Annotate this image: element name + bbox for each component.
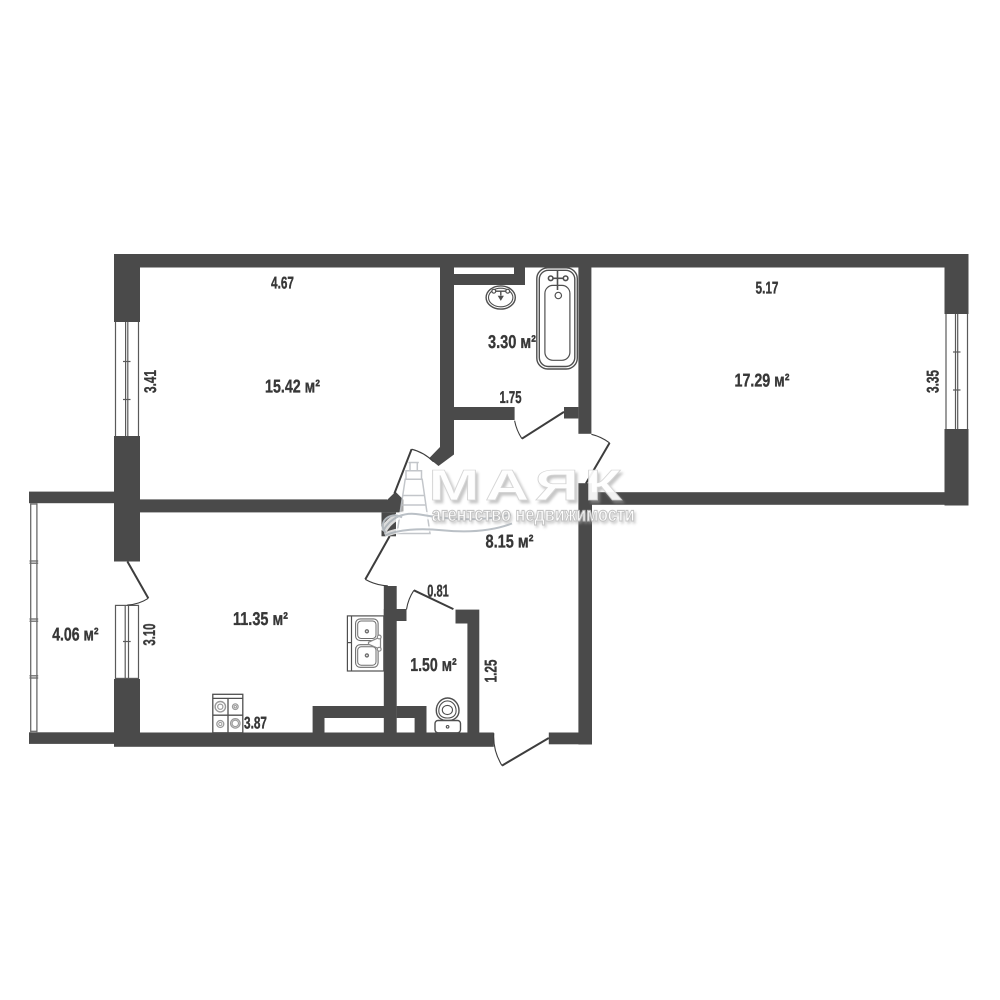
svg-text:МАЯК: МАЯК	[429, 462, 628, 510]
svg-text:17.29 м²: 17.29 м²	[735, 370, 790, 391]
svg-text:5.17: 5.17	[756, 279, 779, 298]
svg-text:3.30 м²: 3.30 м²	[488, 331, 536, 352]
svg-text:1.75: 1.75	[500, 388, 522, 407]
svg-text:4.67: 4.67	[271, 274, 294, 293]
svg-text:3.41: 3.41	[141, 370, 160, 393]
svg-text:11.35 м²: 11.35 м²	[233, 608, 288, 629]
svg-text:3.10: 3.10	[140, 624, 159, 646]
svg-text:1.25: 1.25	[482, 660, 501, 683]
svg-text:3.87: 3.87	[244, 714, 267, 733]
svg-text:агентство недвижимости: агентство недвижимости	[432, 504, 635, 526]
svg-text:0.81: 0.81	[427, 582, 449, 601]
svg-text:4.06 м²: 4.06 м²	[52, 624, 98, 645]
svg-text:8.15 м²: 8.15 м²	[486, 531, 534, 552]
svg-text:15.42 м²: 15.42 м²	[265, 376, 320, 397]
svg-text:3.35: 3.35	[924, 370, 943, 393]
svg-text:1.50 м²: 1.50 м²	[410, 654, 457, 675]
